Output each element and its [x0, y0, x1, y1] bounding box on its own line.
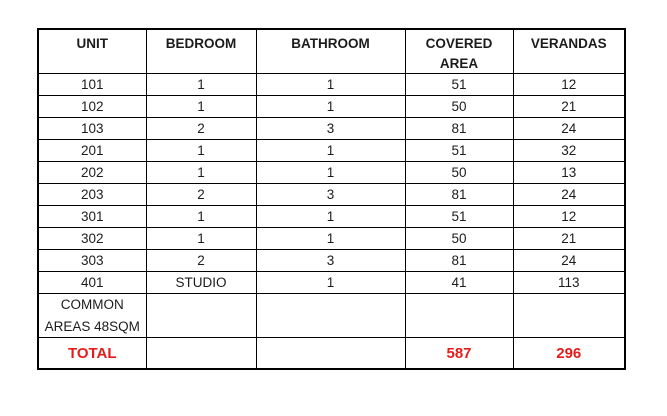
col-header-bathroom: BATHROOM [256, 29, 405, 74]
common-areas-row: COMMON AREAS 48SQM [38, 294, 625, 338]
common-areas-label: COMMON AREAS 48SQM [38, 294, 146, 338]
cell-covered-area: 81 [405, 250, 513, 272]
cell-verandas: 32 [513, 140, 625, 162]
cell-verandas: 12 [513, 206, 625, 228]
cell-empty [146, 338, 256, 369]
header-row: UNIT BEDROOM BATHROOM COVERED AREA VERAN… [38, 29, 625, 74]
table-body: 101 1 1 51 12 102 1 1 50 21 103 2 3 81 2… [38, 74, 625, 369]
cell-bathroom: 1 [256, 272, 405, 294]
cell-bathroom: 3 [256, 184, 405, 206]
cell-unit: 203 [38, 184, 146, 206]
table-row: 203 2 3 81 24 [38, 184, 625, 206]
table-row: 201 1 1 51 32 [38, 140, 625, 162]
cell-unit: 303 [38, 250, 146, 272]
cell-bathroom: 1 [256, 228, 405, 250]
cell-unit: 302 [38, 228, 146, 250]
cell-covered-area: 81 [405, 184, 513, 206]
cell-verandas: 24 [513, 118, 625, 140]
cell-bathroom: 3 [256, 250, 405, 272]
col-header-verandas: VERANDAS [513, 29, 625, 74]
cell-unit: 102 [38, 96, 146, 118]
total-row: TOTAL 587 296 [38, 338, 625, 369]
cell-verandas: 13 [513, 162, 625, 184]
document-page: UNIT BEDROOM BATHROOM COVERED AREA VERAN… [0, 0, 667, 416]
cell-bathroom: 1 [256, 162, 405, 184]
table-row: 301 1 1 51 12 [38, 206, 625, 228]
cell-bedroom: 1 [146, 206, 256, 228]
cell-bedroom: 1 [146, 74, 256, 96]
col-header-unit: UNIT [38, 29, 146, 74]
cell-bedroom: 1 [146, 96, 256, 118]
cell-covered-area: 50 [405, 162, 513, 184]
table-row: 202 1 1 50 13 [38, 162, 625, 184]
cell-covered-area: 50 [405, 96, 513, 118]
table-row: 401 STUDIO 1 41 113 [38, 272, 625, 294]
cell-bedroom: 1 [146, 228, 256, 250]
total-label: TOTAL [38, 338, 146, 369]
table-row: 303 2 3 81 24 [38, 250, 625, 272]
cell-empty [146, 294, 256, 338]
cell-bedroom: 1 [146, 140, 256, 162]
total-verandas: 296 [513, 338, 625, 369]
cell-empty [256, 338, 405, 369]
cell-verandas: 12 [513, 74, 625, 96]
cell-covered-area: 50 [405, 228, 513, 250]
cell-bathroom: 1 [256, 140, 405, 162]
cell-bedroom: STUDIO [146, 272, 256, 294]
cell-bathroom: 3 [256, 118, 405, 140]
cell-verandas: 24 [513, 250, 625, 272]
cell-bedroom: 2 [146, 250, 256, 272]
cell-unit: 201 [38, 140, 146, 162]
table-row: 302 1 1 50 21 [38, 228, 625, 250]
cell-unit: 401 [38, 272, 146, 294]
table-header: UNIT BEDROOM BATHROOM COVERED AREA VERAN… [38, 29, 625, 74]
cell-bathroom: 1 [256, 96, 405, 118]
cell-bathroom: 1 [256, 206, 405, 228]
cell-unit: 202 [38, 162, 146, 184]
cell-covered-area: 41 [405, 272, 513, 294]
cell-covered-area: 51 [405, 74, 513, 96]
col-header-bedroom: BEDROOM [146, 29, 256, 74]
table-row: 103 2 3 81 24 [38, 118, 625, 140]
cell-bedroom: 2 [146, 184, 256, 206]
cell-verandas: 113 [513, 272, 625, 294]
unit-areas-table: UNIT BEDROOM BATHROOM COVERED AREA VERAN… [37, 28, 626, 370]
cell-covered-area: 51 [405, 140, 513, 162]
cell-unit: 103 [38, 118, 146, 140]
table-row: 102 1 1 50 21 [38, 96, 625, 118]
total-covered-area: 587 [405, 338, 513, 369]
cell-verandas: 24 [513, 184, 625, 206]
cell-empty [513, 294, 625, 338]
cell-verandas: 21 [513, 228, 625, 250]
cell-covered-area: 81 [405, 118, 513, 140]
cell-empty [405, 294, 513, 338]
cell-covered-area: 51 [405, 206, 513, 228]
cell-unit: 101 [38, 74, 146, 96]
cell-unit: 301 [38, 206, 146, 228]
cell-verandas: 21 [513, 96, 625, 118]
table-row: 101 1 1 51 12 [38, 74, 625, 96]
col-header-covered-area: COVERED AREA [405, 29, 513, 74]
cell-bathroom: 1 [256, 74, 405, 96]
cell-bedroom: 2 [146, 118, 256, 140]
cell-empty [256, 294, 405, 338]
cell-bedroom: 1 [146, 162, 256, 184]
